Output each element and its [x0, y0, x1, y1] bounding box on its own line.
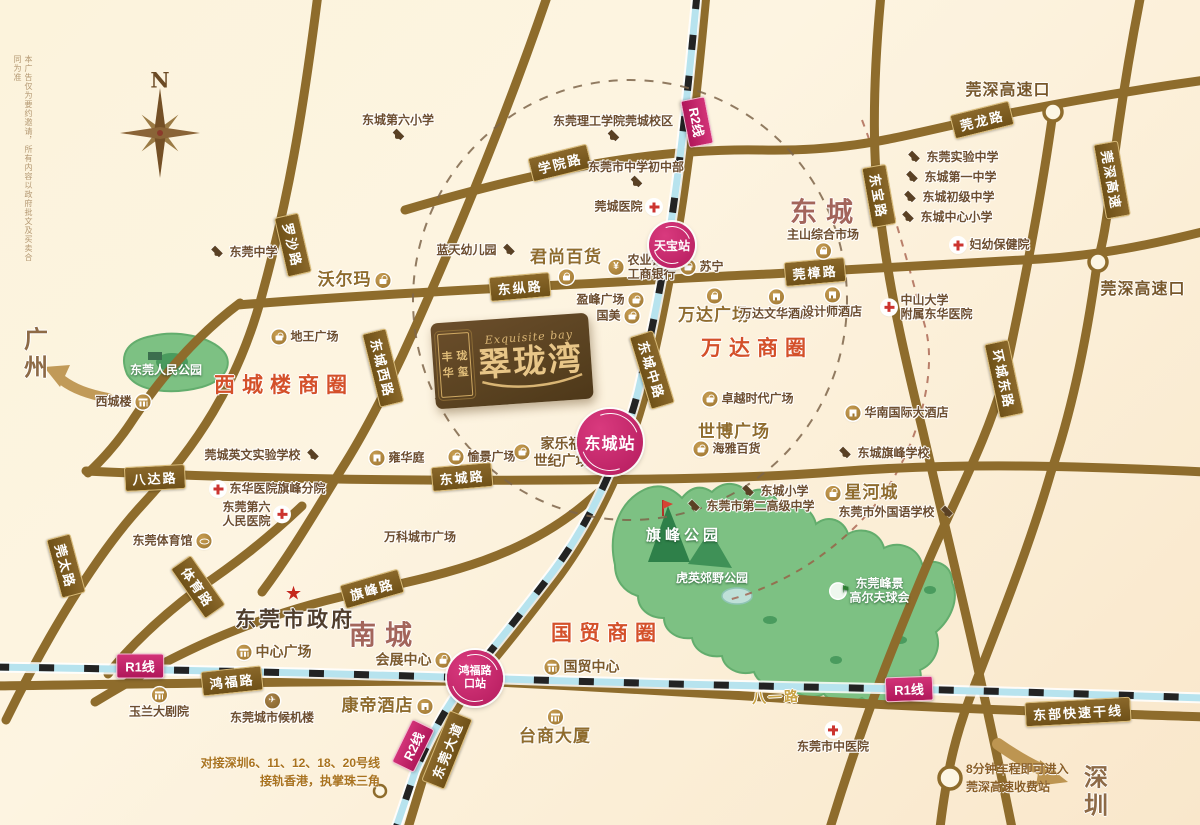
park-label: 旗峰公园 — [646, 527, 722, 545]
hotel-icon — [824, 287, 839, 302]
poi-bldg: 玉兰大剧院 — [129, 687, 189, 718]
poi-shop: 地王广场 — [271, 330, 338, 345]
poi-shop: 沃尔玛 — [318, 270, 391, 290]
business-circle-label: 西城楼商圈 — [214, 369, 354, 399]
disclaimer-vertical-text: 本广告仅为要约邀请，所有内容以政府批文及买卖合同为准 — [12, 55, 34, 270]
shop-icon — [448, 450, 463, 465]
business-circle-label: 万达商圈 — [701, 332, 813, 362]
shop-icon — [707, 288, 722, 303]
poi-school: 东城小学 — [739, 484, 808, 498]
seal-char: 华 — [442, 365, 454, 382]
poi-hotel: 雍华庭 — [369, 451, 424, 466]
school-icon — [836, 447, 853, 459]
compass-north-label: N — [150, 68, 169, 93]
poi-stadium: 东莞体育馆 — [132, 534, 211, 549]
poi-hosp: 中山大学附属东华医院 — [881, 293, 972, 321]
location-map: N 本广告仅为要约邀请，所有内容以政府批文及买卖合同为准 丰 珑 华 玺 Exq… — [0, 0, 1200, 825]
school-icon — [685, 500, 702, 512]
poi-school: 东莞市第二高级中学 — [685, 499, 814, 513]
hosp-icon — [881, 300, 896, 315]
poi-school: 蓝天幼儿园 — [436, 243, 517, 257]
shop-icon — [271, 330, 286, 345]
seal-char: 珑 — [456, 348, 468, 365]
bldg-icon — [237, 644, 252, 659]
shop-icon — [815, 244, 830, 259]
shop-icon — [625, 309, 640, 324]
poi-shop: 愉景广场 — [448, 450, 515, 465]
road-name-text: 八一路 — [752, 686, 801, 708]
school-icon — [901, 191, 918, 203]
guangzhou-arrow-icon — [44, 365, 108, 398]
poi-shop: 主山综合市场 — [787, 227, 859, 258]
school-icon — [604, 130, 621, 142]
bldg-icon — [548, 709, 563, 724]
poi-school: 东莞中学 — [208, 245, 277, 259]
school-icon — [903, 171, 920, 183]
poi-school: 东莞市中学初中部 — [588, 160, 684, 188]
hosp-icon — [647, 200, 662, 215]
poi-hosp: 东莞第六人民医院 — [222, 500, 289, 528]
poi-bldg: 中心广场 — [237, 644, 312, 661]
highway-exit-label: 莞深高速口 — [965, 76, 1050, 100]
shop-icon — [629, 293, 644, 308]
poi-shop: 盈峰广场 — [576, 293, 643, 308]
poi-hotel: 康帝酒店 — [342, 696, 433, 716]
seal-char: 丰 — [441, 349, 453, 366]
hotel-icon — [768, 289, 783, 304]
highway-exit-label: 莞深高速口 — [1100, 275, 1185, 299]
school-icon — [208, 246, 225, 258]
compass-icon — [120, 88, 200, 178]
star-icon — [285, 587, 305, 607]
shop-icon — [826, 485, 841, 500]
stadium-icon — [197, 534, 212, 549]
poi-hotel: 华南国际大酒店 — [845, 406, 948, 421]
poi-bldg: 国贸中心 — [545, 659, 620, 676]
shop-icon — [693, 442, 708, 457]
poi-school: 东莞市外国语学校 — [838, 505, 955, 519]
plane-icon — [264, 693, 279, 708]
poi-plane: 东莞城市候机楼 — [230, 693, 314, 724]
school-icon — [739, 485, 756, 497]
hosp-icon — [825, 722, 840, 737]
poi-school: 莞城英文实验学校 — [204, 448, 321, 462]
poi-shop: 国美 — [596, 309, 639, 324]
map-note: 8分钟车程即可进入莞深高速收费站 — [966, 760, 1069, 796]
logo-chinese-name: 翠珑湾 — [475, 340, 586, 381]
poi-bldg: 台商大厦 — [519, 709, 591, 746]
bldg-icon — [136, 395, 151, 410]
poi-shop: 星河城 — [826, 483, 899, 503]
district-label: 南城 — [349, 614, 421, 653]
metro-line-badge: R1线 — [885, 676, 933, 703]
logo-seal: 丰 珑 华 玺 — [437, 332, 473, 398]
poi-school: 东城旗峰学校 — [836, 446, 929, 460]
seal-char: 玺 — [457, 364, 469, 381]
road-name-badge: 东城路 — [431, 462, 494, 492]
school-icon — [627, 176, 644, 188]
poi-school: 东城第六小学 — [362, 113, 434, 141]
shop-icon — [376, 272, 391, 287]
poi-star: 东莞市政府 — [235, 587, 355, 634]
hotel-icon — [369, 451, 384, 466]
shop-icon — [436, 652, 451, 667]
business-circle-label: 国贸商圈 — [551, 617, 663, 647]
poi-bldg: 西城楼 — [95, 395, 150, 410]
hosp-icon — [210, 482, 225, 497]
poi-label: 万科城市广场 — [384, 530, 456, 544]
map-note: 对接深圳6、11、12、18、20号线接轨香港，执掌珠三角 — [201, 754, 380, 790]
road-bada-dongcheng — [86, 466, 1200, 480]
park-label: 虎英郊野公园 — [676, 571, 748, 585]
metro-station-天宝站: 天宝站 — [649, 222, 695, 268]
metro-station-鸿福路口站: 鸿福路口站 — [447, 650, 503, 706]
poi-hosp: 东华医院旗峰分院 — [210, 482, 325, 497]
hosp-icon — [275, 507, 290, 522]
shop-icon — [702, 392, 717, 407]
poi-school: 东城第一中学 — [903, 170, 996, 184]
poi-school: 东城初级中学 — [901, 190, 994, 204]
school-icon — [939, 506, 956, 518]
poi-shop: 会展中心 — [376, 652, 451, 669]
park-label: 东莞峰景高尔夫球会 — [830, 577, 909, 606]
poi-hotel: 设计师酒店 — [802, 287, 862, 318]
hotel-icon — [845, 406, 860, 421]
poi-shop: 海雅百货 — [693, 442, 760, 457]
school-icon — [905, 151, 922, 163]
district-label: 东城 — [790, 191, 862, 230]
golf-icon — [830, 584, 845, 599]
shop-icon — [559, 270, 574, 285]
poi-hosp: 东莞市中医院 — [797, 722, 869, 753]
poi-label: 世博广场 — [698, 422, 770, 442]
metro-station-东城站: 东城站 — [577, 409, 643, 475]
poi-school: 东城中心小学 — [899, 210, 992, 224]
metro-line-badge: R1线 — [116, 654, 164, 679]
poi-school: 东莞理工学院莞城校区 — [553, 114, 673, 142]
road-name-badge: 莞樟路 — [784, 257, 847, 287]
poi-school: 东莞实验中学 — [905, 150, 998, 164]
hosp-icon — [950, 238, 965, 253]
park-label: 东莞人民公园 — [130, 363, 202, 377]
project-logo: 丰 珑 华 玺 Exquisite bay 翠珑湾 — [430, 313, 594, 410]
poi-shop: 君尚百货 — [530, 247, 602, 284]
hotel-icon — [418, 698, 433, 713]
poi-hosp: 莞城医院 — [594, 200, 661, 215]
city-direction-label: 深圳 — [1084, 764, 1108, 819]
city-direction-label: 广州 — [24, 326, 48, 381]
shop-icon — [515, 445, 530, 460]
poi-hosp: 妇幼保健院 — [950, 238, 1029, 253]
road-name-badge: 八达路 — [124, 464, 186, 492]
bldg-icon — [545, 659, 560, 674]
bldg-icon — [151, 687, 166, 702]
bank-icon — [608, 260, 623, 275]
school-icon — [899, 211, 916, 223]
school-icon — [501, 244, 518, 256]
school-icon — [305, 449, 322, 461]
poi-shop: 卓越时代广场 — [702, 392, 793, 407]
school-icon — [389, 129, 406, 141]
